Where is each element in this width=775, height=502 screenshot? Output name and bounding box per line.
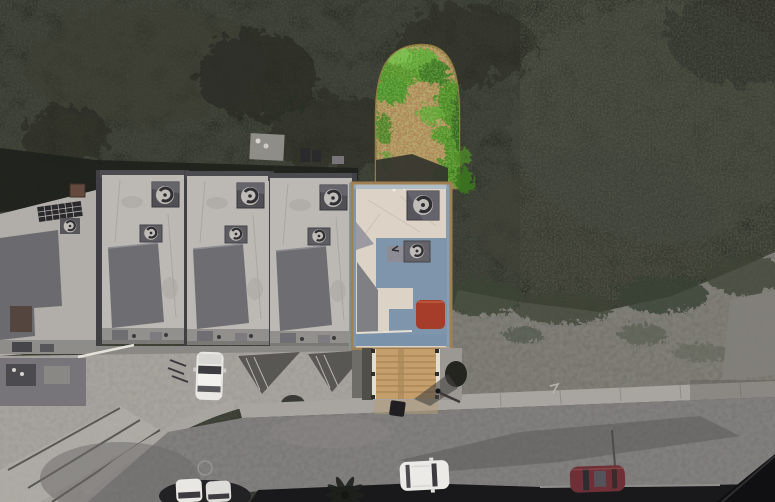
highlighted-house <box>349 183 451 349</box>
party-wall-left <box>96 170 102 352</box>
townhouse-unit-1 <box>100 170 189 346</box>
aerial-photo-canvas <box>0 0 775 502</box>
scrub-gravel-patch <box>722 290 775 380</box>
red-skylight <box>416 300 445 329</box>
aerial-photo <box>0 0 775 502</box>
white-car-bottom-1 <box>175 478 202 502</box>
house-top-trim <box>354 184 447 189</box>
white-car-bottom-2 <box>205 480 231 502</box>
trash-bin <box>389 400 406 417</box>
front-eave-band <box>356 334 447 346</box>
townhouse-row <box>0 133 358 356</box>
maroon-car <box>570 465 626 493</box>
asphalt-light-patch <box>270 416 390 448</box>
house-front-steps <box>352 350 362 398</box>
sidewalk-tree-shadow <box>690 380 775 400</box>
end-unit-deck-box <box>10 306 32 332</box>
brick-chimney <box>70 184 85 197</box>
white-car-driveway <box>192 351 227 400</box>
townhouse-unit-2 <box>185 171 274 347</box>
left-decks <box>0 358 86 406</box>
white-suv <box>399 457 450 495</box>
townhouse-unit-3 <box>268 173 357 349</box>
